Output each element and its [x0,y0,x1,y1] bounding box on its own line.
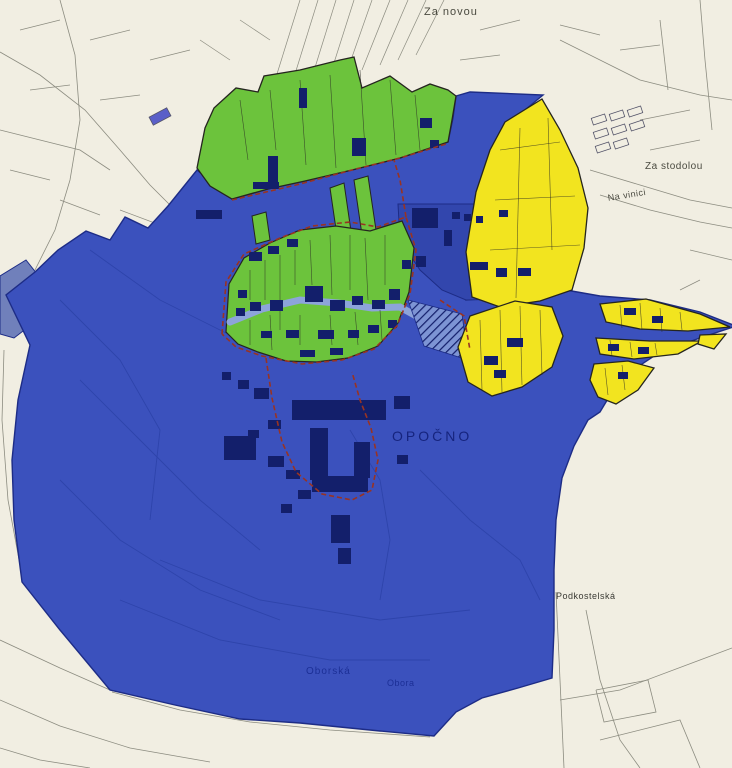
background-parcel-line [30,85,70,90]
building-footprint [249,252,262,261]
background-parcel-line [20,20,60,30]
background-parcel-line [60,200,100,215]
cadastral-map-svg [0,0,732,768]
building-footprint [261,331,272,338]
building-footprint [484,356,498,365]
building-footprint [476,216,483,223]
building-footprint [608,344,619,351]
background-parcel-line [460,55,500,60]
small-hatched-block [629,120,644,131]
building-footprint [330,300,345,311]
building-footprint [253,182,279,189]
building-footprint [196,210,222,219]
building-footprint [268,420,281,429]
building-footprint [624,308,636,315]
building-footprint [638,347,649,354]
building-footprint [464,214,471,221]
small-hatched-block [593,128,608,139]
background-parcel-line [620,45,660,50]
background-parcel-line [90,30,130,40]
background-road-line [0,748,90,768]
building-footprint [250,302,261,311]
background-road-line [590,170,732,208]
building-footprint [352,296,363,305]
background-parcel-line [680,280,700,290]
small-hatched-block [591,114,606,125]
background-parcel-line [380,0,408,65]
background-parcel-line [650,140,700,150]
background-road-line [700,0,712,130]
building-footprint [397,455,408,464]
building-footprint [270,300,283,311]
map-viewport: Za novouZa stodolouNa viniciOPOČNOPodkos… [0,0,732,768]
building-footprint [496,268,507,277]
background-road-line [600,720,700,768]
background-road-line [556,592,564,768]
building-footprint [420,118,432,128]
background-parcel-line [10,170,50,180]
small-hatched-block [149,108,171,125]
small-hatched-block [609,110,624,121]
building-footprint [470,262,488,270]
small-hatched-block [595,142,610,153]
building-footprint [292,400,386,420]
background-road-line [35,0,80,270]
background-parcel-line [150,50,190,60]
building-footprint [287,239,298,247]
building-footprint [499,210,508,217]
background-parcel-line [690,250,732,260]
building-footprint [652,316,663,323]
background-road-line [596,680,656,722]
building-footprint [224,436,256,460]
building-footprint [312,476,368,492]
building-footprint [402,260,411,269]
building-footprint [300,350,315,357]
building-footprint [298,490,311,499]
building-footprint [412,208,438,228]
building-footprint [416,256,426,267]
building-footprint [444,230,452,246]
building-footprint [330,348,343,355]
building-footprint [318,330,334,339]
background-parcel-line [240,20,270,40]
building-footprint [268,156,278,184]
small-hatched-block [611,124,626,135]
small-hatched-block [627,106,642,117]
building-footprint [305,286,323,302]
background-parcel-line [398,0,426,60]
building-footprint [286,330,299,338]
building-footprint [254,388,269,399]
building-footprint [618,372,628,379]
yellow-zone [698,334,726,349]
building-footprint [507,338,523,347]
building-footprint [299,88,307,108]
background-road-line [560,648,732,700]
building-footprint [372,300,385,309]
building-footprint [452,212,460,219]
building-footprint [238,290,247,298]
building-footprint [348,330,359,338]
background-parcel-line [100,95,140,100]
building-footprint [281,504,292,513]
background-parcel-line [480,20,520,30]
background-road-line [600,195,732,228]
building-footprint [389,289,400,300]
building-footprint [354,442,370,478]
background-road-line [0,52,175,210]
background-road-line [660,20,668,90]
building-footprint [338,548,351,564]
building-footprint [331,515,350,543]
building-footprint [236,308,245,316]
background-parcel-line [560,25,600,35]
small-hatched-block [613,138,628,149]
building-footprint [310,428,328,480]
background-parcel-line [200,40,230,60]
building-footprint [268,246,279,254]
building-footprint [352,138,366,156]
building-footprint [494,370,506,378]
building-footprint [238,380,249,389]
background-parcel-line [416,0,444,55]
building-footprint [268,456,284,467]
building-footprint [222,372,231,380]
background-road-line [586,610,640,768]
background-parcel-line [640,110,690,120]
background-road-line [0,130,110,170]
background-parcel-line [362,0,390,70]
building-footprint [368,325,379,333]
building-footprint [394,396,410,409]
building-footprint [518,268,531,276]
